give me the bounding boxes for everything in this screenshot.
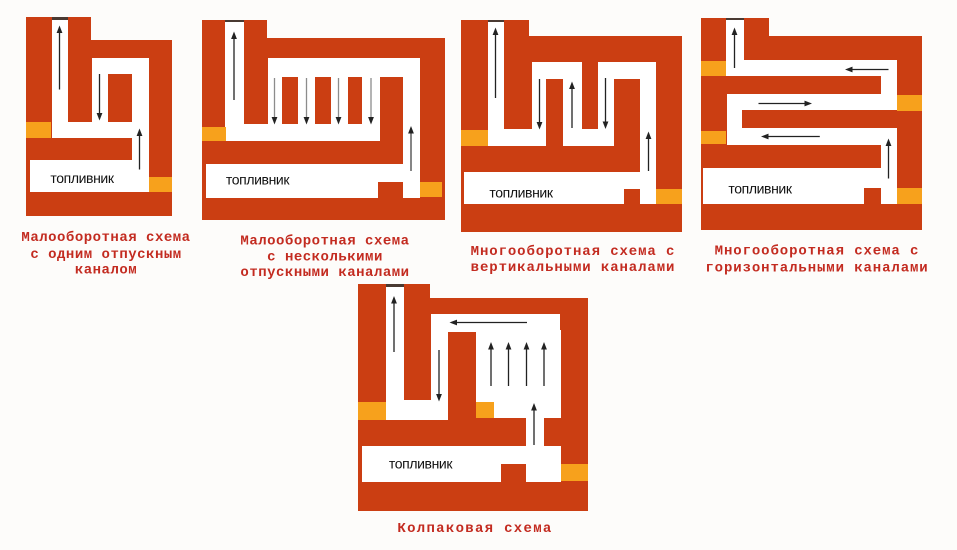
svg-text:топливник: топливник	[728, 181, 792, 197]
svg-text:отпускными каналами: отпускными каналами	[240, 265, 409, 281]
svg-text:Колпаковая схема: Колпаковая схема	[397, 521, 552, 537]
svg-text:с одним отпускным: с одним отпускным	[30, 247, 181, 263]
svg-text:топливник: топливник	[50, 170, 114, 186]
svg-text:с несколькими: с несколькими	[267, 250, 383, 266]
svg-text:вертикальными каналами: вертикальными каналами	[471, 260, 676, 276]
svg-text:Малооборотная схема: Малооборотная схема	[21, 230, 190, 246]
svg-text:горизонтальными каналами: горизонтальными каналами	[705, 260, 928, 276]
svg-text:топливник: топливник	[389, 456, 453, 472]
svg-text:каналом: каналом	[75, 263, 137, 279]
svg-text:Многооборотная схема с: Многооборотная схема с	[715, 244, 920, 260]
svg-text:топливник: топливник	[226, 172, 290, 188]
svg-text:топливник: топливник	[489, 185, 553, 201]
svg-text:Малооборотная схема: Малооборотная схема	[240, 234, 409, 250]
svg-text:Многооборотная схема с: Многооборотная схема с	[471, 244, 676, 260]
